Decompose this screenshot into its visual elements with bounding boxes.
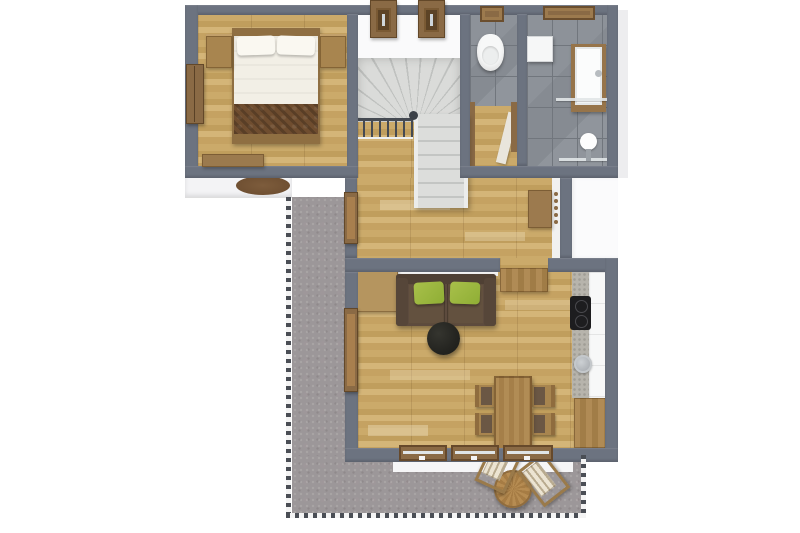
burner (575, 315, 588, 328)
window-handle (524, 456, 530, 460)
green-cushion (413, 281, 444, 305)
roof-slab-right-of-hallway (572, 178, 618, 258)
round-rug (236, 176, 290, 195)
chair-seat (534, 387, 545, 405)
stair-newel-post (409, 111, 418, 120)
terrace-railing-right (581, 455, 586, 518)
sofa-armrest-right (484, 278, 496, 326)
tall-cabinet (500, 268, 548, 292)
shower-glass-partition (556, 98, 607, 101)
wall-wc-bathroom (517, 14, 527, 166)
shower-glass-partition (559, 158, 607, 161)
hallway-terrace-door (344, 192, 358, 244)
floor-plank-highlight (368, 425, 428, 436)
floor-plan-canvas (0, 0, 800, 533)
living-terrace-door (344, 308, 358, 392)
roof-window-icon (370, 0, 397, 38)
faucet (595, 70, 602, 77)
hallway-east-wall-face (552, 178, 560, 258)
bed-runner-blanket (234, 104, 318, 134)
wall-bedroom-stairs (347, 14, 358, 178)
nightstand-left (206, 34, 232, 68)
window-glass (455, 451, 495, 454)
dining-table (494, 376, 532, 450)
floor-plank-highlight (390, 370, 470, 380)
door-leaf (347, 197, 355, 239)
washing-machine (527, 36, 553, 62)
window-handle (471, 456, 477, 460)
bed-pillow (237, 35, 276, 55)
wc-window (480, 6, 504, 22)
window-glass (403, 451, 443, 454)
nightstand-right (320, 34, 346, 68)
wall-living-north-left (345, 258, 500, 272)
floor-plank-highlight (505, 300, 575, 310)
terrace-floor-vertical (292, 197, 345, 455)
wardrobe-door-split (194, 66, 195, 122)
wall-stairs-wc (460, 14, 470, 178)
wall-hallway-east (560, 178, 572, 258)
wall-bedroom-south (185, 166, 358, 178)
roof-window-icon (418, 0, 445, 38)
shower-tray-seat (580, 133, 597, 150)
sofa-backrest (396, 274, 496, 284)
wardrobe (186, 64, 204, 124)
roof-window-glass (376, 8, 391, 32)
chair-seat (534, 415, 545, 433)
door-leaf (347, 314, 355, 386)
toilet (477, 34, 504, 71)
sofa (396, 274, 496, 326)
shower-fitting (586, 149, 591, 161)
window-handle (419, 456, 425, 460)
chair-seat (481, 387, 492, 405)
wall-living-east (605, 258, 618, 462)
burner (575, 300, 588, 313)
bedroom-bench (202, 154, 264, 167)
floor-plank-highlight (465, 232, 525, 241)
washbasin-vanity (571, 44, 606, 112)
double-bed (232, 28, 320, 144)
kitchen-sink (574, 355, 592, 373)
south-window (451, 445, 499, 461)
window-glass (507, 451, 549, 454)
kitchen-stone-countertop (572, 272, 589, 398)
wall-hooks (554, 192, 558, 196)
kitchen-cabinet-run (589, 272, 605, 398)
roof-window-glass (424, 8, 439, 32)
green-cushion (450, 281, 481, 304)
coat-rack-cabinet (528, 190, 552, 228)
wall-bathroom-south (460, 166, 618, 178)
bathroom-window (543, 6, 595, 20)
stair-railing (355, 118, 413, 139)
dining-chair (532, 385, 555, 407)
toilet-seat (482, 46, 499, 65)
south-window (503, 445, 553, 461)
slab-right-edge (618, 10, 628, 178)
cooktop (570, 296, 591, 330)
chair-seat (481, 415, 492, 433)
bed-pillow (277, 35, 316, 55)
terrace-railing-bottom (286, 513, 586, 518)
coffee-table (427, 322, 460, 355)
sofa-armrest-left (396, 278, 408, 326)
terrace-railing-left (286, 197, 291, 518)
dining-chair (532, 413, 555, 435)
south-window (399, 445, 447, 461)
wall-east-bathroom (607, 5, 618, 178)
